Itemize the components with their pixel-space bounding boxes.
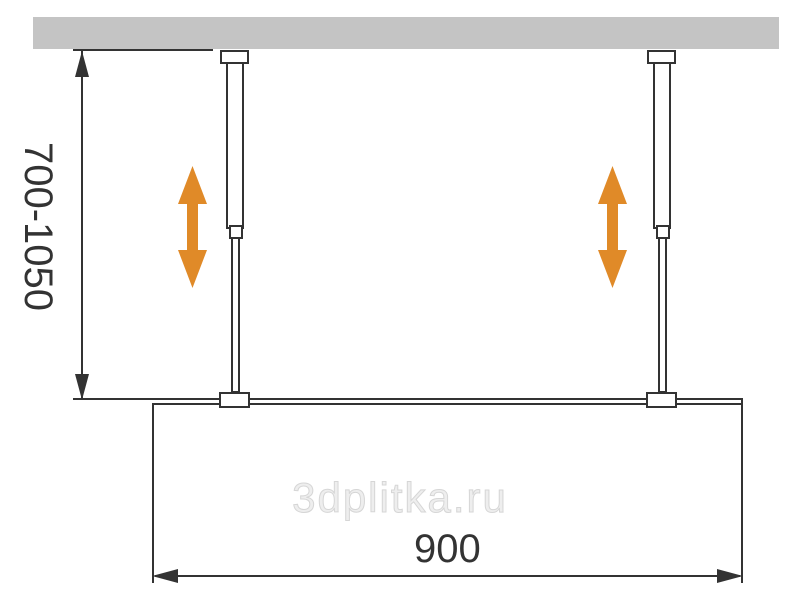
ceiling-slab <box>33 17 779 49</box>
glass-panel-left-edge <box>152 405 154 583</box>
watermark: 3dplitka.ru <box>292 477 508 519</box>
left-rod-upper-tube <box>226 62 244 229</box>
right-rod-lower-shaft <box>658 237 667 393</box>
arrowhead-up-icon <box>75 51 89 77</box>
arrowhead-right-icon <box>717 569 743 583</box>
support-bar-top-line <box>73 398 743 400</box>
right-adjust-arrow-icon <box>598 166 627 288</box>
left-adjust-arrow-icon <box>178 166 207 288</box>
width-dimension-label: 900 <box>414 529 481 569</box>
left-bar-clamp <box>219 392 250 408</box>
height-dimension-line <box>81 51 83 400</box>
installation-diagram: 700-1050 3dplitka.ru 900 <box>0 0 800 599</box>
arrowhead-down-icon <box>75 374 89 400</box>
ceiling-extension-line <box>73 49 213 51</box>
left-rod-lower-shaft <box>231 237 240 393</box>
right-rod-upper-tube <box>653 62 671 229</box>
right-bar-clamp <box>646 392 677 408</box>
height-dimension-label: 700-1050 <box>18 142 58 311</box>
glass-panel-right-edge <box>741 400 743 583</box>
arrowhead-left-icon <box>152 569 178 583</box>
width-dimension-line <box>155 575 740 577</box>
